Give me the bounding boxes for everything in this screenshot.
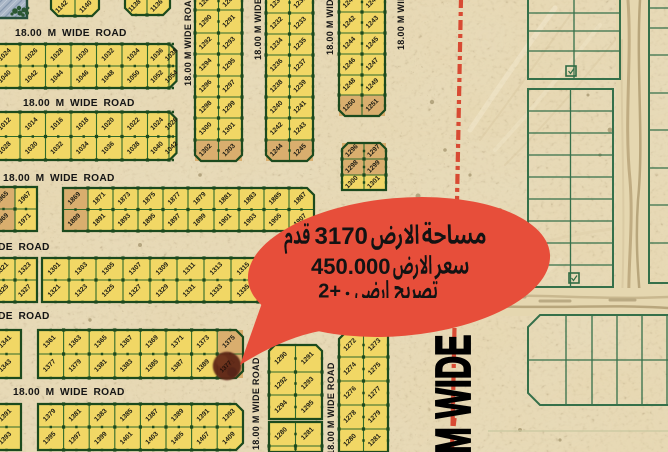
svg-text:450.000: 450.000 [311, 254, 391, 279]
svg-text:18.00 M WIDE ROAD: 18.00 M WIDE ROAD [0, 242, 50, 253]
svg-text:18.00 M WIDE ROAD: 18.00 M WIDE ROAD [3, 173, 115, 184]
svg-text:18.00 M WIDE ROAD: 18.00 M WIDE ROAD [251, 357, 261, 450]
svg-text:18.00 M WIDE ROAD: 18.00 M WIDE ROAD [23, 98, 135, 109]
svg-text:18.00 M WIDE ROAD: 18.00 M WIDE ROAD [13, 387, 125, 398]
svg-text:18.00 M WIDE ROAD: 18.00 M WIDE ROAD [183, 0, 193, 86]
svg-text:18.00 M WIDE ROAD: 18.00 M WIDE ROAD [0, 311, 50, 322]
svg-text:18.00 M WIDE ROAD: 18.00 M WIDE ROAD [396, 0, 406, 50]
svg-text:18.00 M WIDE ROAD: 18.00 M WIDE ROAD [15, 28, 127, 39]
svg-text:18.00 M WIDE ROAD: 18.00 M WIDE ROAD [325, 0, 335, 55]
svg-text:18.00 M WIDE ROAD: 18.00 M WIDE ROAD [253, 0, 263, 60]
svg-text:18.00 M WIDE ROAD: 18.00 M WIDE ROAD [326, 362, 336, 452]
svg-text:M WIDE: M WIDE [426, 335, 480, 452]
svg-text:3170: 3170 [315, 223, 368, 250]
